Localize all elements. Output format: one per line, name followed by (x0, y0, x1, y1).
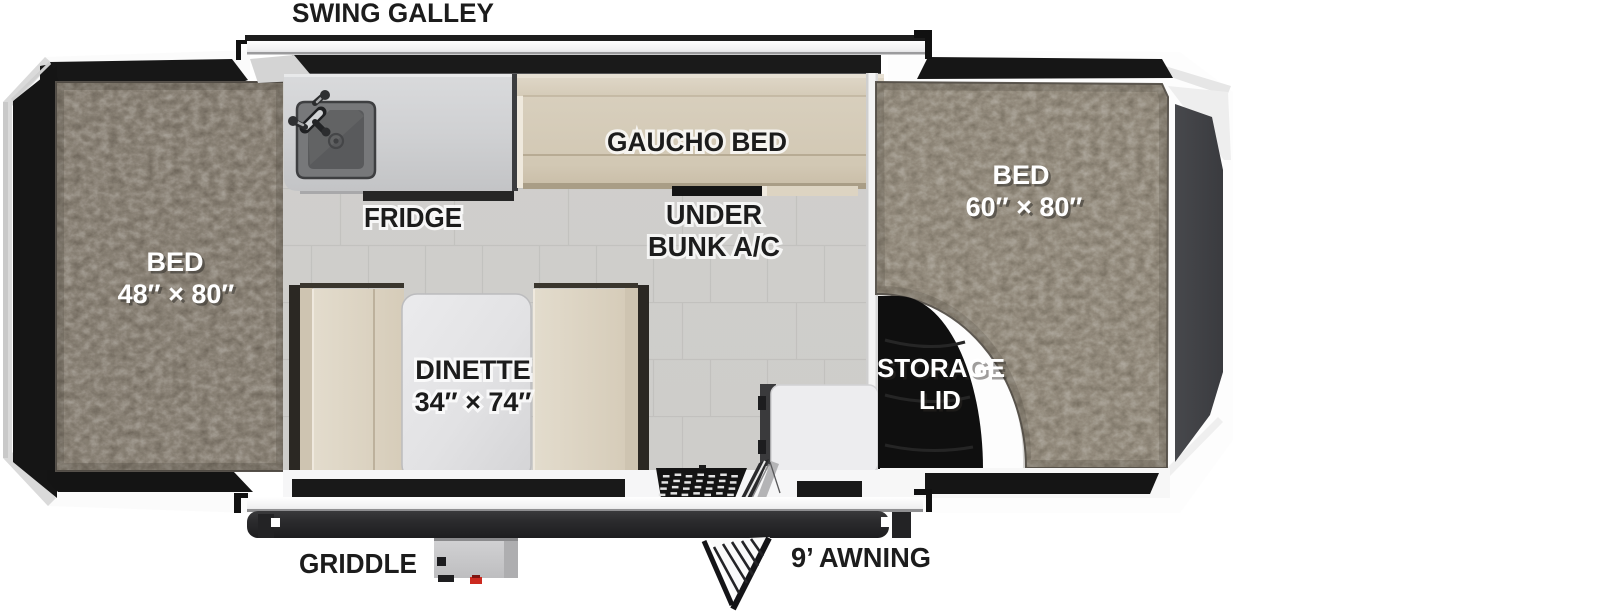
svg-text:GRIDDLE: GRIDDLE (299, 548, 417, 579)
svg-text:UNDER: UNDER (666, 199, 762, 230)
svg-text:48″ × 80″: 48″ × 80″ (118, 279, 235, 309)
svg-text:LID: LID (919, 385, 961, 415)
svg-text:BED: BED (992, 160, 1049, 190)
svg-text:60″ × 80″: 60″ × 80″ (966, 192, 1083, 222)
svg-text:BUNK A/C: BUNK A/C (648, 231, 780, 262)
svg-text:STORAGE: STORAGE (877, 353, 1005, 383)
svg-text:FRIDGE: FRIDGE (364, 202, 462, 233)
svg-text:BED: BED (146, 247, 203, 277)
svg-text:34″ × 74″: 34″ × 74″ (415, 387, 532, 417)
svg-text:9’ AWNING: 9’ AWNING (791, 542, 931, 573)
svg-text:GAUCHO BED: GAUCHO BED (607, 127, 787, 157)
svg-text:DINETTE: DINETTE (415, 355, 531, 385)
svg-text:SWING GALLEY: SWING GALLEY (292, 0, 494, 28)
